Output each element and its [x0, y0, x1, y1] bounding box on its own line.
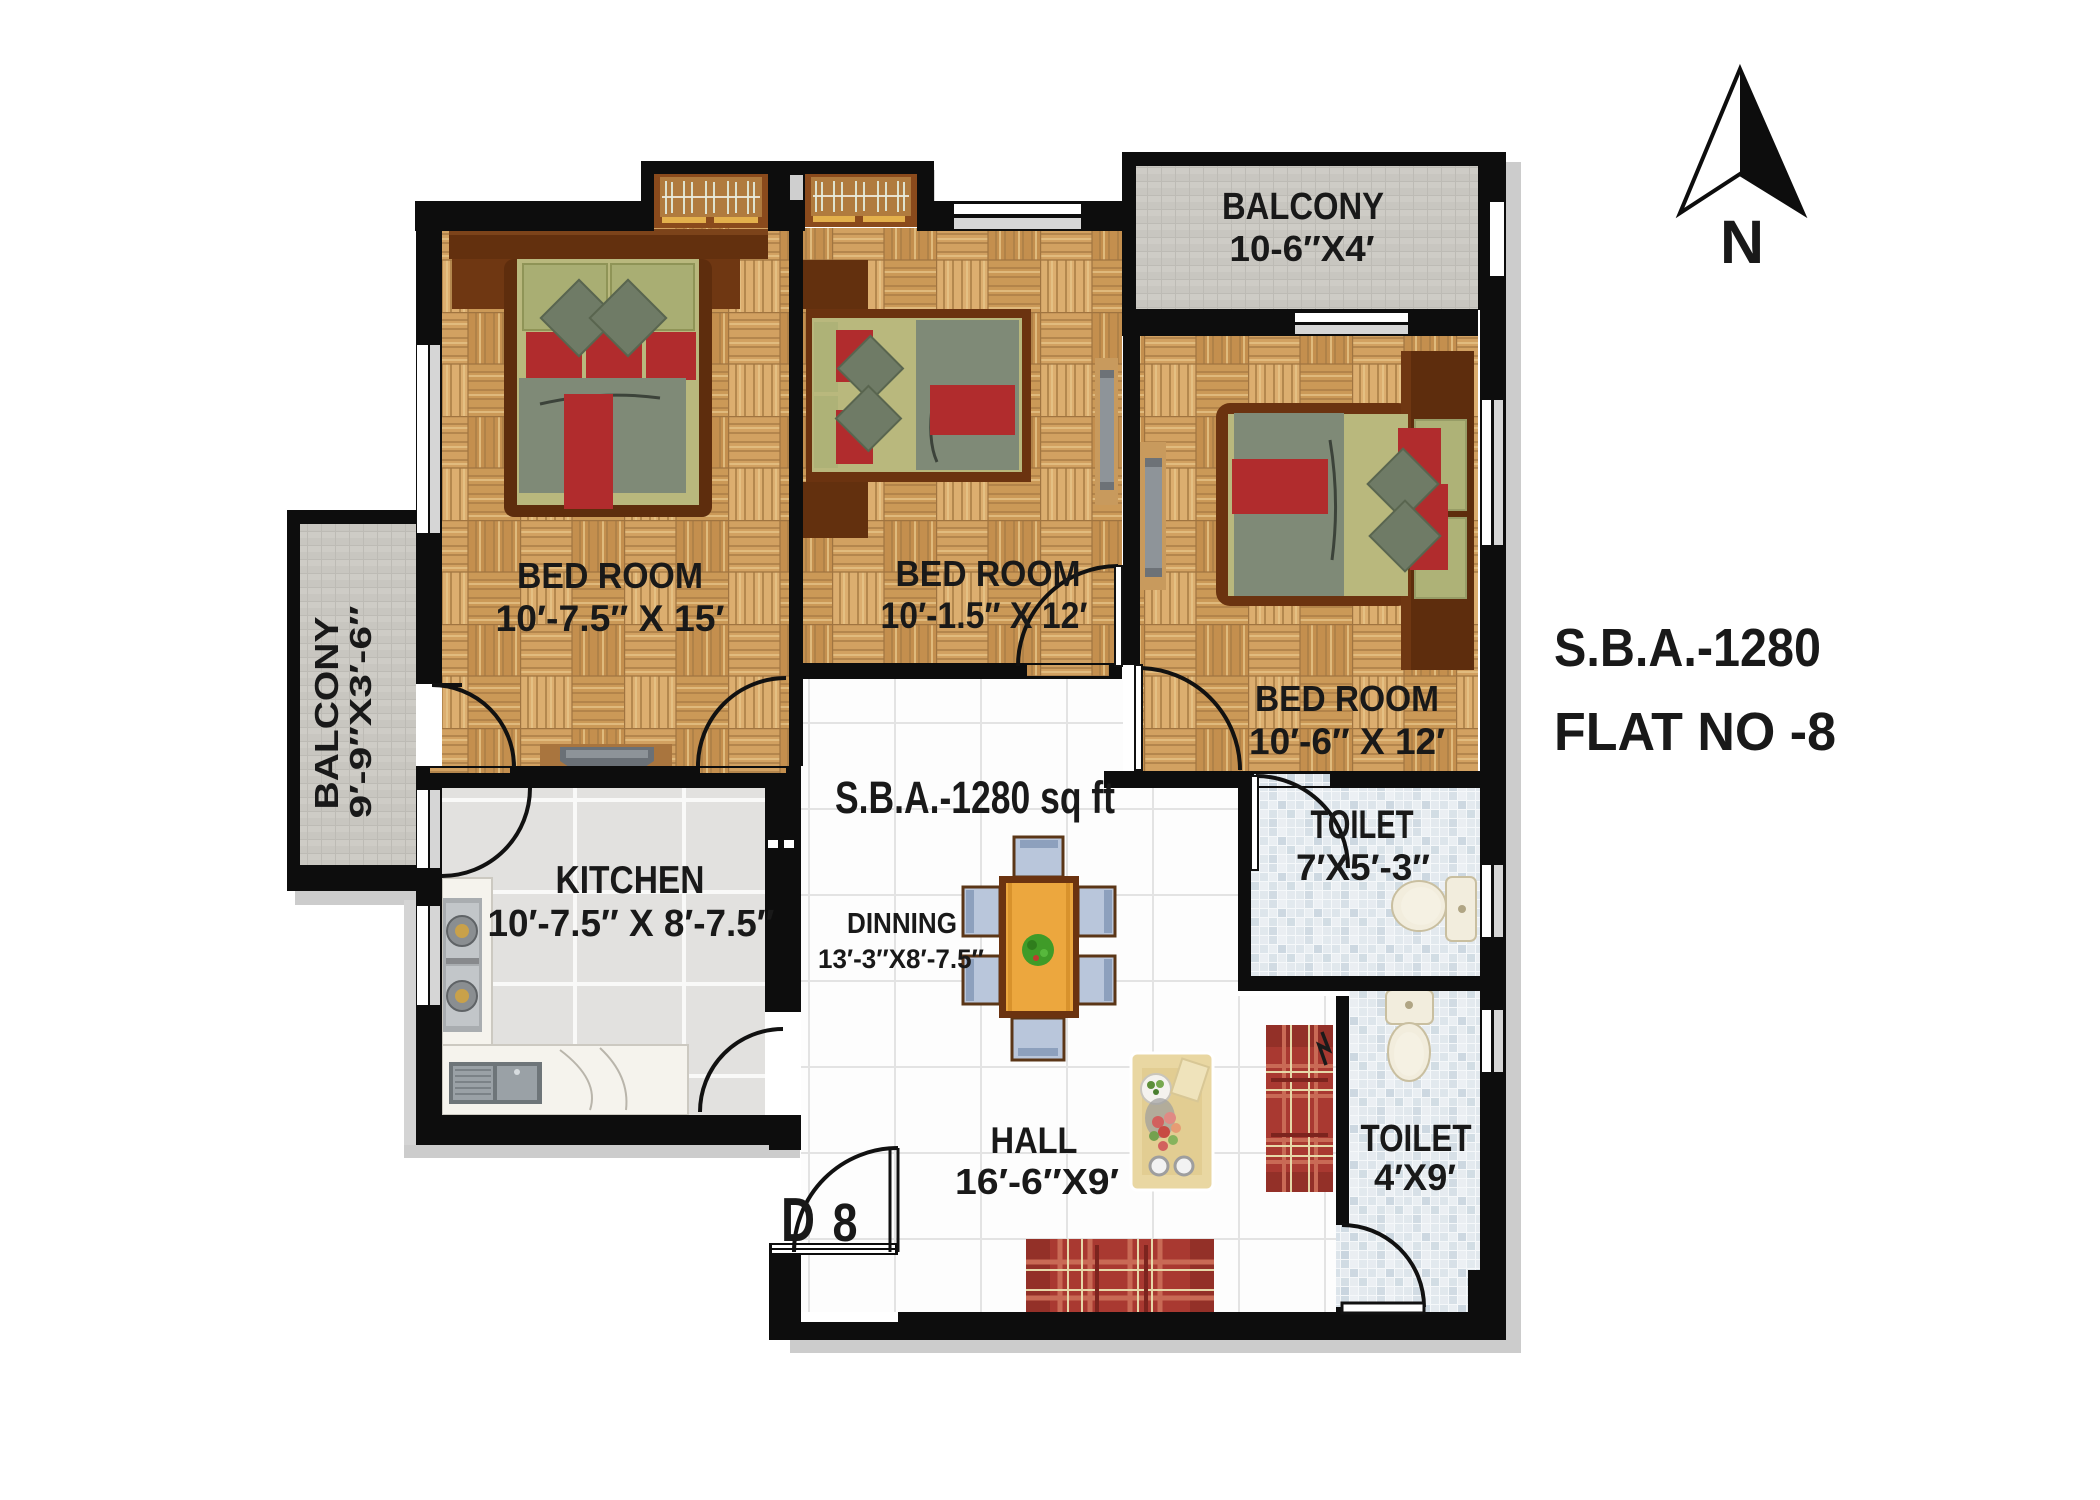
svg-text:10′-1.5″ X 12′: 10′-1.5″ X 12′ [881, 595, 1088, 636]
svg-text:10-6″X4′: 10-6″X4′ [1230, 228, 1375, 269]
svg-text:16′-6″X9′: 16′-6″X9′ [955, 1161, 1119, 1202]
svg-text:BED ROOM: BED ROOM [896, 553, 1081, 594]
svg-text:BED ROOM: BED ROOM [517, 555, 703, 596]
svg-text:BALCONY: BALCONY [308, 617, 345, 810]
svg-text:TOILET: TOILET [1311, 803, 1414, 847]
svg-text:S.B.A.-1280 sq ft: S.B.A.-1280 sq ft [835, 772, 1115, 823]
svg-text:10′-7.5″ X 15′: 10′-7.5″ X 15′ [496, 598, 725, 639]
svg-text:BED ROOM: BED ROOM [1255, 678, 1439, 719]
svg-text:N: N [1720, 208, 1764, 276]
svg-text:13′-3″X8′-7.5″: 13′-3″X8′-7.5″ [818, 944, 984, 974]
svg-text:9′-9″X3′-6″: 9′-9″X3′-6″ [343, 605, 378, 818]
svg-text:DINNING: DINNING [847, 908, 957, 940]
svg-text:D: D [781, 1186, 815, 1255]
svg-text:KITCHEN: KITCHEN [556, 859, 705, 902]
svg-text:BALCONY: BALCONY [1222, 186, 1384, 228]
svg-text:HALL: HALL [991, 1120, 1078, 1161]
svg-text:8: 8 [833, 1193, 858, 1253]
svg-text:4′X9′: 4′X9′ [1374, 1157, 1456, 1198]
svg-text:FLAT NO -8: FLAT NO -8 [1554, 702, 1836, 762]
svg-text:10′-6″ X 12′: 10′-6″ X 12′ [1249, 721, 1445, 762]
svg-text:10′-7.5″ X 8′-7.5″: 10′-7.5″ X 8′-7.5″ [488, 903, 775, 945]
svg-text:7′X5′-3″: 7′X5′-3″ [1296, 847, 1430, 888]
svg-text:TOILET: TOILET [1361, 1118, 1472, 1160]
svg-text:S.B.A.-1280: S.B.A.-1280 [1554, 618, 1821, 678]
